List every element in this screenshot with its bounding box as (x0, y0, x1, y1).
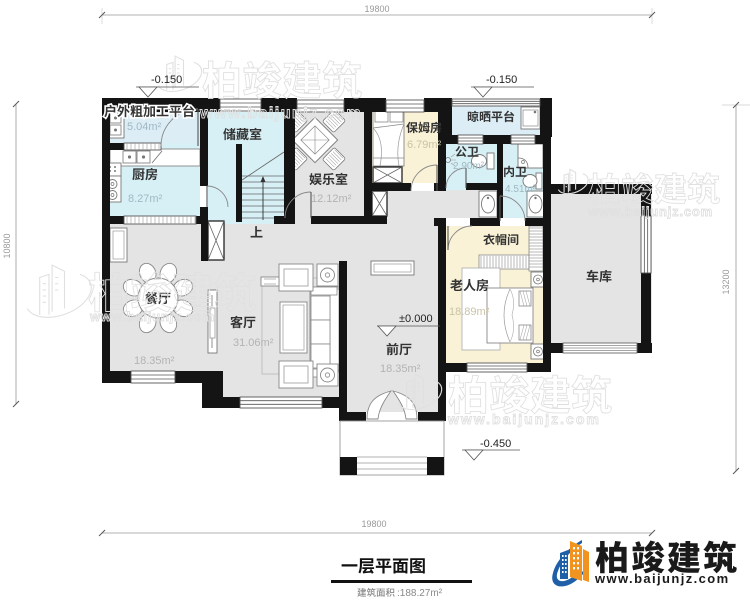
svg-text:8.27m²: 8.27m² (128, 193, 163, 205)
svg-text:www.baijunjz.com: www.baijunjz.com (447, 411, 601, 427)
svg-text::188.27m²: :188.27m² (397, 588, 443, 599)
svg-text:19800: 19800 (361, 519, 386, 529)
svg-text:13200: 13200 (721, 269, 731, 294)
svg-text:18.35m²: 18.35m² (134, 355, 175, 367)
svg-text:www.baijunjz.com: www.baijunjz.com (89, 309, 215, 324)
svg-text:10800: 10800 (2, 233, 12, 258)
svg-text:6.79m²: 6.79m² (407, 139, 442, 151)
svg-text:-0.150: -0.150 (486, 74, 517, 86)
svg-text:5.04m²: 5.04m² (127, 121, 162, 133)
svg-text:www.baijunjz.com: www.baijunjz.com (587, 204, 713, 219)
svg-text:2.90m²: 2.90m² (453, 161, 485, 172)
svg-text:www.baijunjz.com: www.baijunjz.com (199, 105, 362, 122)
svg-text:31.06m²: 31.06m² (233, 337, 274, 349)
svg-text:4.51m²: 4.51m² (505, 184, 537, 195)
svg-text:19800: 19800 (364, 4, 389, 14)
svg-text:18.89m²: 18.89m² (449, 306, 490, 318)
svg-text:±0.000: ±0.000 (399, 313, 433, 325)
svg-text:-0.150: -0.150 (151, 74, 182, 86)
svg-text:12.12m²: 12.12m² (311, 193, 352, 205)
svg-text:-0.450: -0.450 (480, 438, 511, 450)
svg-text:18.35m²: 18.35m² (380, 363, 421, 375)
svg-text:www.baijunjz.com: www.baijunjz.com (594, 571, 730, 586)
